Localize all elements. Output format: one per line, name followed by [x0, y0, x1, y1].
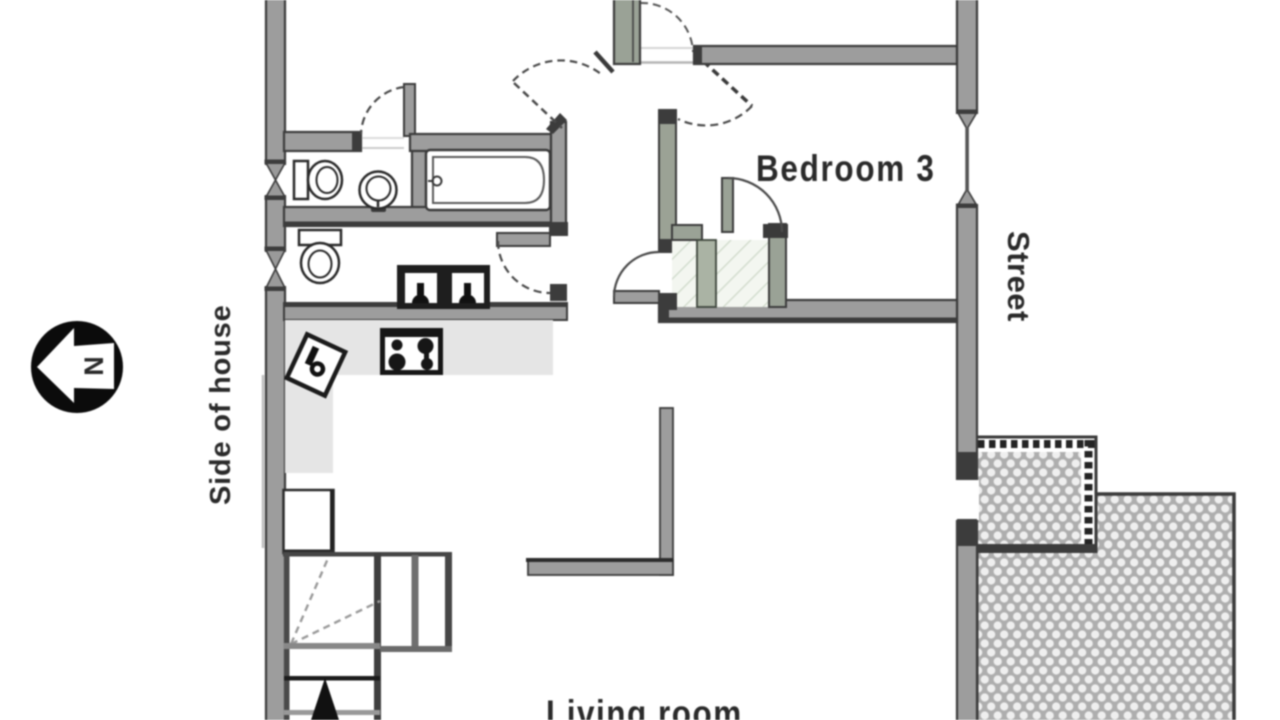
svg-text:Side of house: Side of house — [205, 304, 237, 505]
svg-text:Bedroom 3: Bedroom 3 — [756, 149, 936, 190]
svg-text:N: N — [79, 356, 109, 376]
svg-text:Living room: Living room — [546, 694, 743, 720]
svg-text:Street: Street — [1001, 231, 1036, 322]
